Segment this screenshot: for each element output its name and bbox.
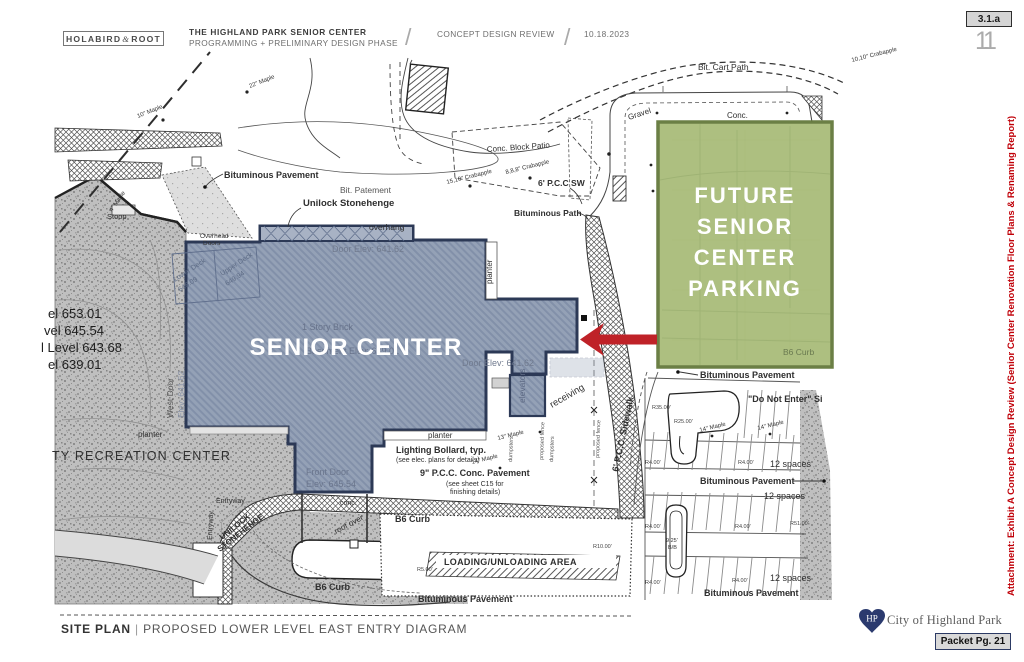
svg-text:el 639.01: el 639.01 <box>48 357 102 372</box>
svg-text:Bituminous Path: Bituminous Path <box>514 208 582 218</box>
svg-text:Lighting Bollard, typ.: Lighting Bollard, typ. <box>396 445 486 455</box>
svg-text:proposed fence: proposed fence <box>539 422 546 460</box>
svg-text:R4.00': R4.00' <box>645 524 661 530</box>
svg-text:TY RECREATION CENTER: TY RECREATION CENTER <box>52 449 231 463</box>
svg-text:R5.00': R5.00' <box>417 567 433 573</box>
svg-text:Entryway: Entryway <box>216 498 245 505</box>
svg-text:10" Maple: 10" Maple <box>137 104 165 120</box>
svg-text:FUTURE: FUTURE <box>694 183 795 208</box>
svg-text:9.25': 9.25' <box>666 538 678 544</box>
svg-text:R4.00': R4.00' <box>645 580 661 586</box>
svg-text:12 spaces: 12 spaces <box>770 573 812 583</box>
svg-text:R4.00': R4.00' <box>645 460 661 466</box>
svg-text:Door Elev: 641.62: Door Elev: 641.62 <box>462 358 534 368</box>
svg-text:l Level 643.68: l Level 643.68 <box>41 340 122 355</box>
svg-text:vel 645.54: vel 645.54 <box>44 323 104 338</box>
svg-text:R35.00': R35.00' <box>652 405 671 411</box>
svg-text:12 spaces: 12 spaces <box>764 491 806 501</box>
svg-text:R4.00': R4.00' <box>738 460 754 466</box>
svg-text:proposed fence: proposed fence <box>595 420 602 458</box>
svg-text:Unilock Stonehenge: Unilock Stonehenge <box>303 198 394 209</box>
svg-text:Bit. Cart Path: Bit. Cart Path <box>698 62 749 72</box>
svg-text:Bit. Patement: Bit. Patement <box>340 185 392 195</box>
svg-text:SENIOR: SENIOR <box>697 214 793 239</box>
svg-text:B/B: B/B <box>668 545 677 551</box>
svg-text:conc.: conc. <box>340 500 357 507</box>
svg-text:LOADING/UNLOADING AREA: LOADING/UNLOADING AREA <box>444 557 577 567</box>
svg-text:R4.00': R4.00' <box>732 578 748 584</box>
svg-text:Bituminous Pavement: Bituminous Pavement <box>224 170 319 180</box>
svg-text:B6 Curb: B6 Curb <box>395 514 431 524</box>
svg-text:dumpsters: dumpsters <box>508 436 515 462</box>
svg-text:el 653.01: el 653.01 <box>48 306 102 321</box>
svg-text:CENTER: CENTER <box>694 245 796 270</box>
svg-text:Bituminous Pavement: Bituminous Pavement <box>704 588 799 598</box>
svg-text:14" Maple: 14" Maple <box>757 419 785 431</box>
svg-text:Gravel: Gravel <box>627 106 652 122</box>
svg-text:R25.00': R25.00' <box>674 419 693 425</box>
svg-text:Stoop: Stoop <box>107 212 127 221</box>
svg-text:HP: HP <box>866 614 878 624</box>
svg-text:receiving: receiving <box>548 382 586 411</box>
svg-text:9" P.C.C. Conc. Pavement: 9" P.C.C. Conc. Pavement <box>420 468 530 478</box>
svg-text:8,8,8" Crabapple: 8,8,8" Crabapple <box>505 159 551 176</box>
svg-text:(see elec. plans for details): (see elec. plans for details) <box>396 457 480 464</box>
svg-text:Doors: Doors <box>203 240 221 247</box>
svg-text:Overhead: Overhead <box>200 233 229 240</box>
svg-text:Front Door: Front Door <box>306 467 349 477</box>
svg-text:finishing details): finishing details) <box>450 489 500 496</box>
svg-text:22" Maple: 22" Maple <box>249 74 277 90</box>
svg-text:6' P.C.C SW: 6' P.C.C SW <box>538 178 586 188</box>
svg-text:Entryway: Entryway <box>207 511 215 541</box>
svg-text:planter: planter <box>138 430 163 439</box>
svg-text:12 spaces: 12 spaces <box>770 459 812 469</box>
svg-text:B6 Curb: B6 Curb <box>783 347 814 357</box>
svg-text:"Do Not Enter" Si: "Do Not Enter" Si <box>748 394 823 404</box>
svg-text:Bituminous Pavement: Bituminous Pavement <box>700 476 795 486</box>
svg-text:(see sheet C15 for: (see sheet C15 for <box>446 481 504 488</box>
svg-text:R51.00': R51.00' <box>790 521 809 527</box>
svg-text:Door Elev: 641.62: Door Elev: 641.62 <box>332 244 404 254</box>
svg-text:dumpsters: dumpsters <box>549 436 556 462</box>
svg-text:R4.00': R4.00' <box>735 524 751 530</box>
svg-text:overhang: overhang <box>369 222 405 232</box>
svg-text:Conc.: Conc. <box>727 111 748 120</box>
svg-text:B6 Curb: B6 Curb <box>315 582 351 592</box>
svg-text:PARKING: PARKING <box>688 276 802 301</box>
svg-text:Elev: 641.62: Elev: 641.62 <box>176 370 186 418</box>
svg-text:planter: planter <box>485 259 494 284</box>
svg-text:Bituminous Pavement: Bituminous Pavement <box>418 594 513 604</box>
svg-text:West Door: West Door <box>165 378 175 418</box>
svg-text:Bituminous Pavement: Bituminous Pavement <box>700 370 795 380</box>
svg-text:Elev: 645.54: Elev: 645.54 <box>306 479 356 489</box>
svg-text:R10.00': R10.00' <box>593 544 612 550</box>
svg-text:1 Story Brick: 1 Story Brick <box>302 322 354 332</box>
svg-text:SENIOR CENTER: SENIOR CENTER <box>250 334 463 361</box>
svg-text:10,10" Crabapple: 10,10" Crabapple <box>851 47 898 64</box>
svg-text:elevators: elevators <box>517 369 527 404</box>
svg-text:planter: planter <box>428 431 453 440</box>
